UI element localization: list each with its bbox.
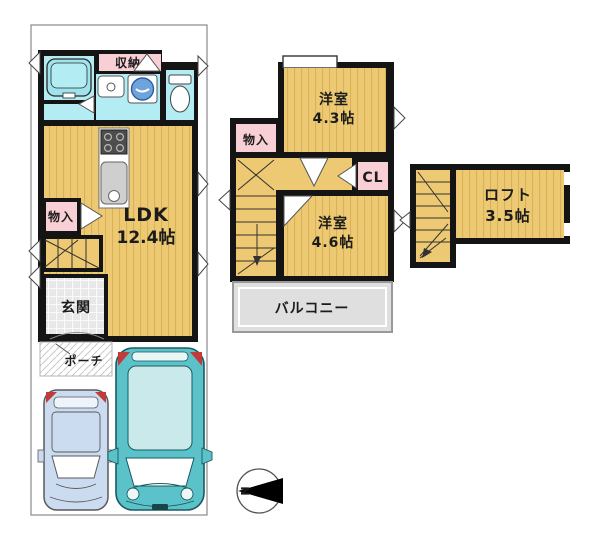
car-teal <box>108 348 212 510</box>
ldk-label: LDK <box>123 204 169 226</box>
kitchen-counter <box>99 128 129 208</box>
loft-window-bottom <box>564 223 570 236</box>
first-floor: 収納 物 <box>29 50 208 376</box>
loft-window-top <box>564 172 570 185</box>
porch: ポーチ <box>40 342 112 376</box>
loft-stairs <box>416 170 450 262</box>
cl-closet: CL <box>358 162 388 190</box>
car2-mirror-right <box>202 448 212 464</box>
first-floor-closet-label: 物入 <box>48 209 74 224</box>
floor-plan-svg: 収納 物 <box>0 0 600 542</box>
loft-label: ロフト <box>484 186 532 204</box>
second-floor-closet: 物入 <box>236 124 276 152</box>
loft-size: 3.5帖 <box>485 207 531 225</box>
car2-license-plate <box>152 504 168 510</box>
cl-label: CL <box>362 170 383 186</box>
loft-room: ロフト 3.5帖 <box>456 170 564 238</box>
basin-laundry-area <box>96 74 160 120</box>
room-b-label: 洋室 <box>318 215 348 232</box>
car2-headlight-right <box>181 488 193 500</box>
room-a-label: 洋室 <box>319 91 349 108</box>
bathroom <box>44 56 94 100</box>
car2-headlight-left <box>127 488 139 500</box>
entrance-hall: 玄関 <box>44 276 106 339</box>
balcony-label: バルコニー <box>275 301 350 317</box>
toilet-room <box>166 70 194 120</box>
room-a-size: 4.3帖 <box>313 110 356 127</box>
car-light-blue <box>38 390 114 510</box>
western-room-a: 洋室 4.3帖 <box>284 68 386 152</box>
balcony: バルコニー <box>233 282 392 332</box>
car1-mirror-left <box>38 450 44 462</box>
toilet-icon <box>169 75 191 84</box>
porch-label: ポーチ <box>64 353 103 368</box>
room-b-size: 4.6帖 <box>312 234 355 251</box>
floor-plan-canvas: 収納 物 <box>0 0 600 542</box>
loft-floor: ロフト 3.5帖 <box>400 164 570 268</box>
bay-window <box>283 56 337 68</box>
compass-north-label: N <box>239 486 252 495</box>
compass: N <box>237 469 283 513</box>
ldk-size-label: 12.4帖 <box>117 227 176 248</box>
loft-window-marker <box>400 212 410 228</box>
second-floor: 洋室 4.3帖 物入 <box>219 56 405 332</box>
entrance-label: 玄関 <box>61 299 91 316</box>
first-floor-stairs <box>44 237 101 270</box>
second-floor-closet-label: 物入 <box>243 132 269 147</box>
